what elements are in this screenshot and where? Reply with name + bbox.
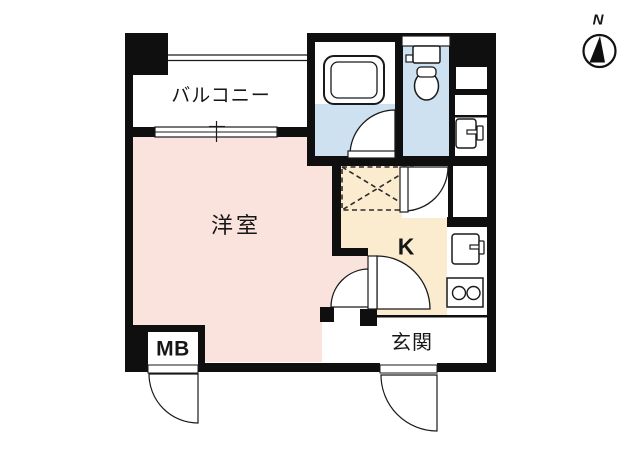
toilet-window — [402, 36, 450, 46]
entrance-label: 玄関 — [391, 333, 433, 353]
entrance-step-line — [377, 315, 487, 318]
western-room-label: 洋室 — [211, 215, 261, 237]
room-door-leaf — [368, 256, 377, 309]
floor-plan: バルコニー 洋室 K 玄関 MB N — [0, 0, 640, 469]
compass-north-icon — [584, 35, 616, 67]
bathtub-icon — [324, 56, 384, 104]
wall-right — [487, 33, 496, 372]
entrance-door-arc — [381, 375, 437, 431]
pipe-shaft-box — [456, 67, 487, 89]
meter-box-door-arc — [149, 374, 198, 423]
hallway-door-leaf — [400, 167, 408, 212]
wall-top-left-block — [125, 33, 168, 75]
closet-floor — [453, 166, 487, 217]
washbasin-icon — [456, 119, 483, 148]
compass-north-label: N — [593, 13, 604, 28]
kitchen-sink-icon — [452, 234, 484, 264]
meter-box-label: MB — [156, 339, 190, 360]
wall-left — [125, 33, 133, 372]
floor-plan-canvas — [0, 0, 640, 469]
stove-two-burner-icon — [447, 278, 483, 307]
entrance-doorway — [380, 365, 437, 373]
balcony-label: バルコニー — [171, 87, 271, 106]
meter-box-doorway — [148, 365, 198, 373]
kitchen-label: K — [398, 236, 415, 259]
bathroom-door-leaf — [348, 151, 395, 158]
